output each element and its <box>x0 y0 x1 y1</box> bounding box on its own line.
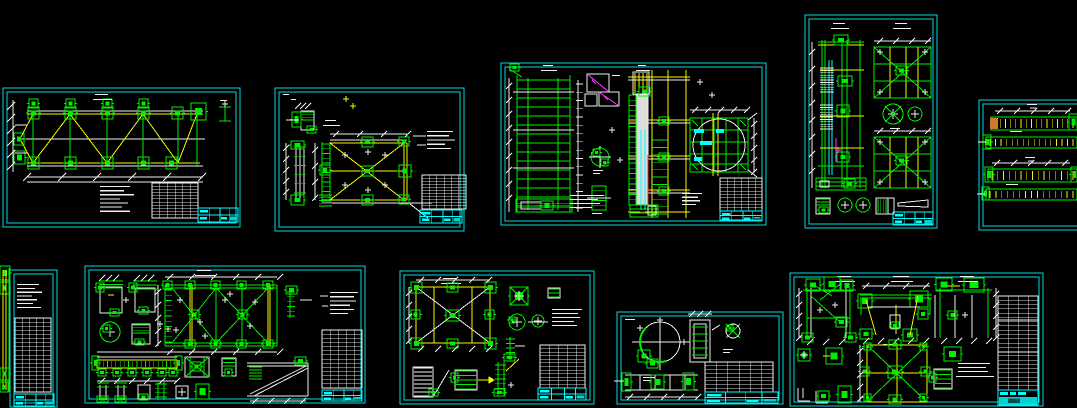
node-detail-core <box>511 319 514 322</box>
general-notes <box>100 207 122 208</box>
annotation-text <box>291 99 296 100</box>
node-detail-core <box>310 128 314 131</box>
node-detail-core <box>105 327 108 330</box>
node-detail-core <box>31 110 36 115</box>
node-detail-core <box>488 285 493 290</box>
node-detail-core <box>453 376 456 380</box>
node-detail-core <box>193 313 197 317</box>
node-detail-core <box>899 69 904 73</box>
annotation-text <box>625 319 635 320</box>
node-detail-core <box>662 155 666 159</box>
node-detail-core <box>822 209 826 212</box>
annotation-text <box>895 23 907 24</box>
title-block-text <box>722 213 730 216</box>
general-notes <box>17 288 35 289</box>
node-detail-core <box>227 371 230 374</box>
title-block-text <box>444 219 451 222</box>
node-detail-core <box>847 182 852 186</box>
node-detail-core <box>365 198 370 202</box>
title-block-text <box>707 400 720 403</box>
node-detail-core <box>828 281 835 287</box>
detail-notes <box>552 309 582 310</box>
node-detail-core <box>922 396 925 399</box>
general-notes <box>17 284 39 285</box>
detail-notes <box>330 300 356 301</box>
detail-notes <box>427 139 455 140</box>
general-notes <box>17 303 33 304</box>
node-detail-core <box>603 161 606 164</box>
node-detail-core <box>863 370 867 374</box>
node-detail-core <box>662 119 666 123</box>
node-detail-core <box>924 370 928 374</box>
title-block-text <box>422 212 430 215</box>
title-block-text <box>895 221 902 224</box>
node-detail-core <box>931 376 934 380</box>
annotation-underline <box>195 275 215 276</box>
node-detail-core <box>68 160 73 165</box>
title-block-stamp <box>46 402 53 405</box>
node-detail-core <box>100 371 104 374</box>
detail-notes <box>552 317 580 318</box>
node-detail-core <box>323 168 327 172</box>
node-detail-core <box>241 313 245 317</box>
node-detail-core <box>2 385 6 389</box>
node-detail-core <box>142 102 146 106</box>
title-block-text <box>540 396 549 399</box>
title-block-stamp <box>925 220 932 224</box>
title-block-stamp <box>576 396 584 399</box>
node-detail-core <box>141 160 146 165</box>
cad-viewport[interactable] <box>0 0 1077 408</box>
detail-notes <box>552 313 578 314</box>
node-detail-core <box>118 398 123 401</box>
annotation-text <box>833 23 845 24</box>
node-detail-core <box>842 79 848 83</box>
annotation-text <box>723 352 730 353</box>
general-notes <box>100 186 130 187</box>
node-detail-core <box>214 342 218 346</box>
general-notes <box>100 211 130 212</box>
annotation-text <box>197 270 211 271</box>
annotation-text <box>682 197 698 198</box>
node-detail-core <box>32 102 36 106</box>
node-detail-core <box>625 378 629 386</box>
title-block-text <box>200 210 208 213</box>
node-detail-core <box>98 286 102 290</box>
annotation-text <box>893 276 909 277</box>
node-detail-core <box>970 282 979 288</box>
node-detail-core <box>414 313 418 317</box>
node-detail-core <box>100 398 105 401</box>
node-detail-core <box>892 398 897 402</box>
node-detail-core <box>195 365 199 369</box>
node-detail-core <box>200 388 206 395</box>
node-detail-core <box>145 371 149 374</box>
node-detail-core <box>68 110 73 115</box>
detail-notes <box>570 207 592 208</box>
node-detail-core <box>866 345 869 348</box>
annotation-text <box>1025 157 1035 158</box>
annotation-text <box>890 128 900 129</box>
node-detail-core <box>171 371 175 374</box>
node-detail-core <box>840 108 845 113</box>
node-detail-core <box>138 341 142 344</box>
node-detail-core <box>175 110 180 115</box>
node-detail-core <box>899 159 904 163</box>
node-detail-core <box>650 362 655 366</box>
annotation-text <box>543 65 553 66</box>
detail-notes <box>552 321 574 322</box>
node-detail-core <box>951 313 955 317</box>
node-detail-core <box>289 288 294 292</box>
annotation-underline <box>323 125 340 126</box>
node-detail-core <box>69 102 73 106</box>
title-block-text <box>565 396 573 399</box>
annotation-underline <box>541 70 557 71</box>
node-detail-core <box>842 391 848 398</box>
annotation-underline <box>891 281 913 282</box>
node-detail-core <box>987 171 991 178</box>
title-block-text <box>895 214 903 217</box>
annotation-text <box>283 94 289 95</box>
node-detail-core <box>595 151 598 154</box>
general-notes <box>17 299 37 300</box>
node-detail-core <box>3 371 7 376</box>
node-detail-core <box>17 155 22 161</box>
title-block-stamp <box>763 399 775 402</box>
node-detail-core <box>142 396 146 399</box>
detail-notes <box>330 309 354 310</box>
title-block-text <box>707 394 722 397</box>
annotation-underline <box>893 28 911 29</box>
detail-notes <box>427 131 453 132</box>
detail-notes <box>427 135 449 136</box>
general-notes <box>100 194 134 195</box>
annotation-text <box>443 278 457 279</box>
node-detail-core <box>1073 171 1076 178</box>
title-block-text <box>1008 398 1020 403</box>
node-detail-core <box>940 282 947 288</box>
node-detail-core <box>130 371 134 374</box>
annotation-text <box>960 276 974 277</box>
node-detail-core <box>402 198 406 202</box>
node-detail-core <box>188 283 192 287</box>
title-block-text <box>345 398 351 401</box>
node-detail-core <box>177 360 180 366</box>
node-detail-core <box>1072 118 1076 125</box>
node-detail-core <box>830 352 837 359</box>
title-block-text <box>722 218 730 221</box>
title-block-text <box>540 390 550 393</box>
node-detail-core <box>169 160 174 165</box>
node-detail-core <box>188 342 192 346</box>
node-detail-core <box>432 391 436 394</box>
detail-notes <box>958 367 986 368</box>
annotation-text <box>643 377 655 378</box>
title-block-text <box>916 221 922 224</box>
node-detail-core <box>866 396 869 399</box>
node-detail-core <box>105 110 110 115</box>
node-detail-core <box>402 168 407 173</box>
detail-notes <box>330 292 358 293</box>
annotation-text <box>643 380 651 381</box>
node-detail-core <box>365 169 370 173</box>
annotation-text <box>593 170 603 171</box>
node-detail-core <box>414 341 419 346</box>
node-detail-core <box>295 143 301 147</box>
node-detail-core <box>915 295 923 302</box>
annotation-text <box>1006 184 1018 185</box>
node-detail-core <box>450 286 455 290</box>
general-notes <box>17 295 32 296</box>
annotation-text <box>1027 104 1037 105</box>
detail-notes <box>570 203 600 204</box>
title-block-stamp <box>230 217 237 221</box>
annotation-text <box>682 193 702 194</box>
general-notes <box>17 292 42 293</box>
node-detail-core <box>195 108 202 115</box>
title-block-stamp <box>354 397 361 400</box>
annotation-text <box>682 200 700 201</box>
node-detail-core <box>892 343 897 347</box>
general-notes <box>100 202 128 203</box>
title-block-stamp <box>454 218 461 222</box>
node-detail-core <box>921 312 925 316</box>
node-detail-core <box>544 204 549 208</box>
node-detail-core <box>240 283 244 287</box>
node-detail-core <box>402 140 406 144</box>
general-notes <box>100 190 124 191</box>
node-detail-core <box>642 90 647 94</box>
node-detail-core <box>160 371 164 374</box>
cad-canvas[interactable] <box>0 0 1077 408</box>
cad-fill <box>700 141 712 145</box>
detail-notes <box>330 296 354 297</box>
node-detail-core <box>863 332 868 336</box>
node-detail-core <box>266 342 270 346</box>
node-detail-core <box>131 286 135 290</box>
title-block-text <box>422 219 430 222</box>
general-notes <box>17 307 41 308</box>
node-detail-core <box>655 379 661 385</box>
annotation-underline <box>958 281 978 282</box>
end-plate <box>990 118 998 129</box>
annotation-underline <box>93 99 112 100</box>
node-detail-core <box>298 359 303 363</box>
node-detail-core <box>641 353 646 358</box>
node-detail-core <box>488 341 493 346</box>
annotation-text <box>220 100 227 101</box>
detail-notes <box>427 144 445 145</box>
node-detail-core <box>240 342 244 346</box>
node-detail-core <box>266 283 270 287</box>
node-detail-core <box>488 313 492 317</box>
title-block-text <box>324 392 332 395</box>
title-block-text <box>747 400 759 403</box>
node-detail-core <box>840 155 845 159</box>
node-detail-core <box>844 283 849 288</box>
detail-notes <box>552 325 577 326</box>
title-block-text <box>744 218 751 221</box>
node-detail-core <box>295 198 301 202</box>
node-detail-core <box>662 189 666 193</box>
annotation-text <box>325 120 336 121</box>
node-detail-core <box>893 324 897 327</box>
annotation-text <box>723 349 733 350</box>
title-block-text <box>37 402 43 405</box>
annotation-text <box>95 94 108 95</box>
detail-notes <box>570 195 604 196</box>
detail-notes <box>958 371 988 372</box>
node-detail-core <box>513 66 517 69</box>
general-notes <box>100 198 120 199</box>
node-detail-core <box>729 327 732 330</box>
cad-fill <box>694 129 704 133</box>
title-block-stamp <box>754 217 761 219</box>
detail-notes <box>958 363 990 364</box>
column-core <box>636 95 648 205</box>
annotation-text <box>593 173 600 174</box>
node-detail-core <box>142 309 146 312</box>
title-block-text <box>1000 392 1008 395</box>
annotation-underline <box>956 376 994 377</box>
node-detail-core <box>848 336 853 340</box>
node-detail-core <box>805 336 810 340</box>
annotation-text <box>592 213 602 214</box>
node-detail-core <box>450 342 455 346</box>
node-detail-core <box>839 320 844 324</box>
node-detail-core <box>105 160 110 165</box>
title-block-text <box>324 398 331 401</box>
title-block-text <box>1018 392 1026 395</box>
annotation-underline <box>831 28 849 29</box>
node-detail-core <box>414 285 419 290</box>
node-detail-core <box>166 283 170 287</box>
node-detail-core <box>821 394 826 398</box>
cad-fill <box>694 157 702 161</box>
node-detail-core <box>949 351 956 357</box>
node-detail-core <box>450 313 456 318</box>
node-detail-core <box>115 371 119 374</box>
node-detail-core <box>686 378 691 385</box>
annotation-text <box>612 75 620 76</box>
annotation-underline <box>835 281 855 282</box>
detail-notes <box>570 199 598 200</box>
title-block-text <box>200 217 207 220</box>
node-detail-core <box>31 160 36 165</box>
node-detail-core <box>497 391 502 394</box>
node-detail-core <box>141 110 146 115</box>
node-detail-core <box>17 136 21 141</box>
node-detail-core <box>214 283 218 287</box>
node-detail-core <box>113 311 117 314</box>
title-block-text <box>1010 392 1016 395</box>
node-detail-core <box>106 102 110 106</box>
detail-notes <box>427 148 451 149</box>
detail-notes <box>330 305 350 306</box>
cad-fill <box>716 129 724 133</box>
detail-notes <box>330 313 348 314</box>
node-detail-core <box>892 369 898 374</box>
title-block-text <box>16 396 24 399</box>
node-detail-core <box>507 356 512 359</box>
annotation-text <box>638 65 646 66</box>
annotation-text <box>682 204 696 205</box>
node-detail-core <box>365 140 370 144</box>
annotation-text <box>1010 131 1022 132</box>
node-detail-core <box>922 345 925 348</box>
node-detail-core <box>94 360 97 366</box>
annotation-underline <box>636 70 650 71</box>
title-block-text <box>221 217 227 220</box>
node-detail-core <box>838 38 844 42</box>
title-block-text <box>16 402 23 405</box>
